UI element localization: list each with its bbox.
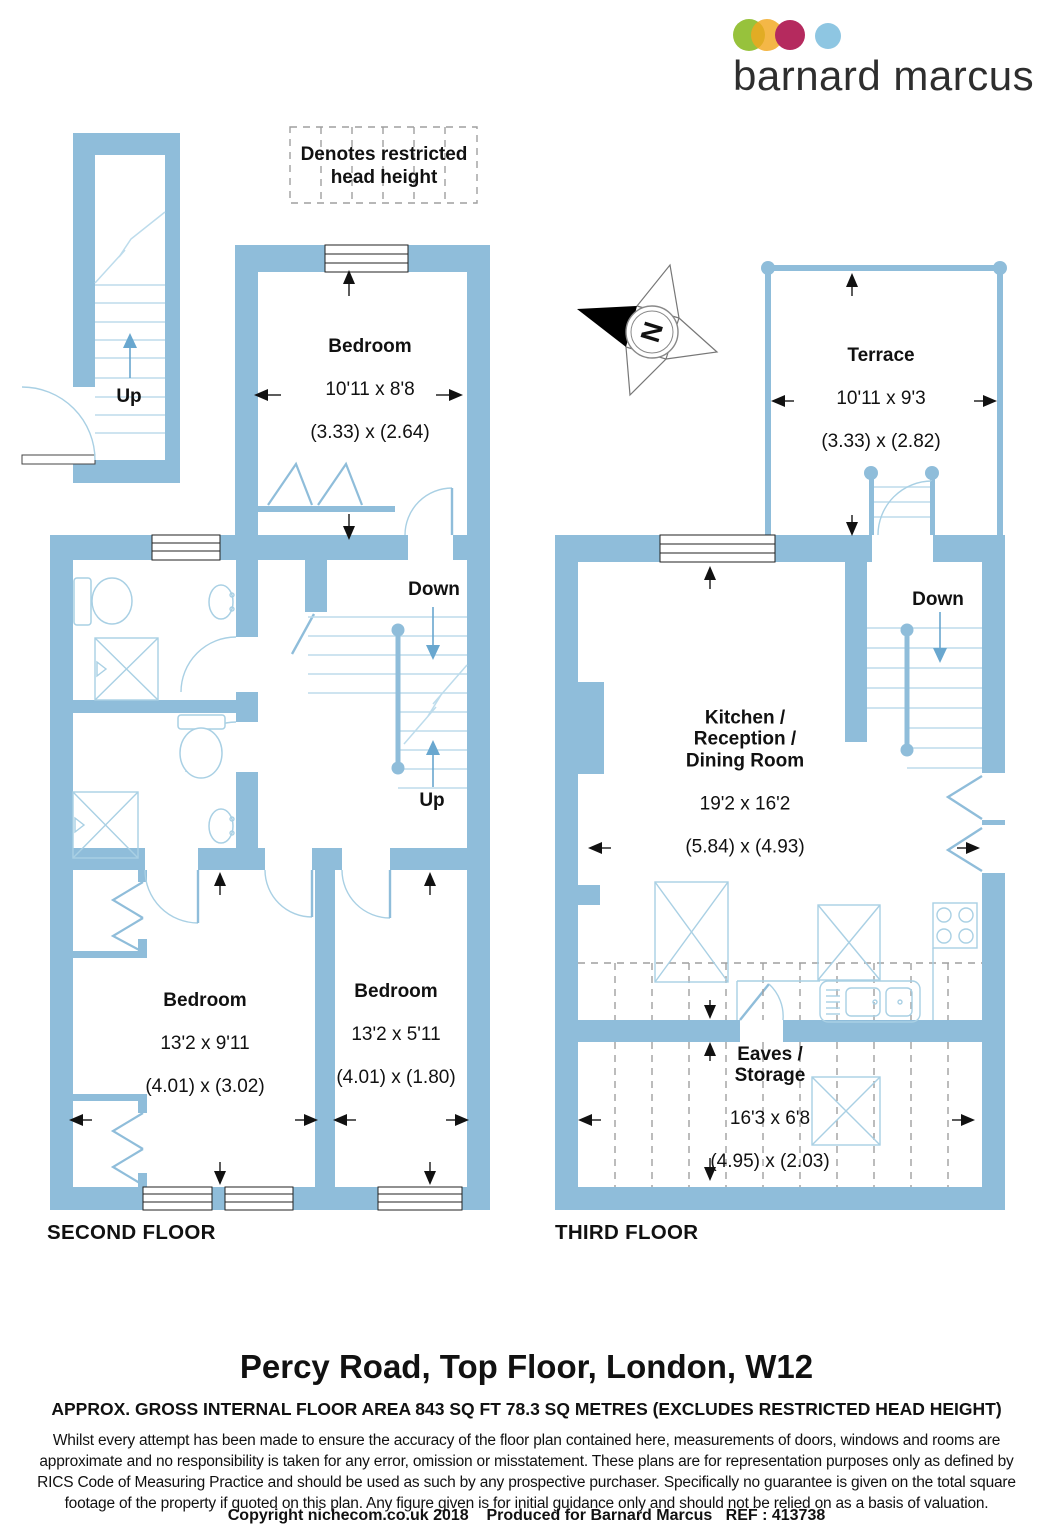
window-symbols-third-floor [660,535,775,562]
floor-area-line: APPROX. GROSS INTERNAL FLOOR AREA 843 SQ… [0,1399,1053,1420]
third-floor-label: THIRD FLOOR [555,1221,698,1245]
brand-logo-dots-icon [733,19,841,51]
room-label-bedroom-right: Bedroom 13'2 x 5'11 (4.01) x (1.80) [336,959,455,1110]
room-dims-metric: (5.84) x (4.93) [685,836,804,858]
room-name: Kitchen / Reception / Dining Room [685,707,804,772]
room-label-bedroom-left: Bedroom 13'2 x 9'11 (4.01) x (3.02) [145,968,264,1119]
up-arrow-icon [426,740,440,755]
room-name: Bedroom [310,335,429,357]
second-floor-stair-shaft [22,133,180,483]
brand-wordmark: barnard marcus [733,52,1034,100]
page-title: Percy Road, Top Floor, London, W12 [0,1348,1053,1386]
room-dims-imperial: 16'3 x 6'8 [710,1108,829,1130]
copyright-line: Copyright nichecom.co.uk 2018 Produced f… [0,1507,1053,1525]
room-label-eaves: Eaves / Storage 16'3 x 6'8 (4.95) x (2.0… [710,1022,829,1194]
stair-up-label: Up [419,790,444,812]
room-dims-imperial: 10'11 x 8'8 [310,378,429,400]
third-floor-stairs [867,612,982,768]
room-label-kitchen: Kitchen / Reception / Dining Room 19'2 x… [685,685,804,879]
stair-down-label: Down [912,589,964,611]
compass-rose-icon: N [577,265,717,395]
room-dims-metric: (3.33) x (2.82) [821,430,940,452]
room-name: Terrace [821,344,940,366]
stair-down-label: Down [408,579,460,601]
toilet-symbol [178,715,225,778]
room-dims-metric: (3.33) x (2.64) [310,421,429,443]
floorplan-page: N [0,0,1053,1536]
kitchen-fixtures [655,882,977,1022]
second-floor-label: SECOND FLOOR [47,1221,216,1245]
room-name: Eaves / Storage [710,1044,829,1087]
room-dims-metric: (4.95) x (2.03) [710,1151,829,1173]
shower-symbol [95,638,158,700]
hob-symbol [933,903,977,948]
room-dims-imperial: 19'2 x 16'2 [685,793,804,815]
room-label-bedroom-top: Bedroom 10'11 x 8'8 (3.33) x (2.64) [310,314,429,465]
stair-up-label: Up [116,386,141,408]
toilet-symbol [74,578,132,625]
down-arrow-icon [933,648,947,663]
down-arrow-icon [426,645,440,660]
room-label-terrace: Terrace 10'11 x 9'3 (3.33) x (2.82) [821,323,940,474]
second-floor-landing-stairs [308,607,467,788]
skylight-symbol [655,882,728,982]
sink-symbol [209,809,234,843]
sink-unit-symbol [820,981,920,1022]
floorplan-drawing: N [0,0,1053,1536]
legend-label: Denotes restricted head height [301,143,468,189]
bathroom-fixtures [73,578,234,858]
room-dims-metric: (4.01) x (3.02) [145,1075,264,1097]
disclaimer-text: Whilst every attempt has been made to en… [20,1430,1034,1514]
room-dims-metric: (4.01) x (1.80) [336,1066,455,1088]
room-name: Bedroom [336,980,455,1002]
room-dims-imperial: 10'11 x 9'3 [821,387,940,409]
sink-symbol [209,585,234,619]
room-dims-imperial: 13'2 x 5'11 [336,1023,455,1045]
room-name: Bedroom [145,989,264,1011]
terrace-steps [864,466,939,535]
skylight-symbol [818,905,880,980]
room-dims-imperial: 13'2 x 9'11 [145,1032,264,1054]
